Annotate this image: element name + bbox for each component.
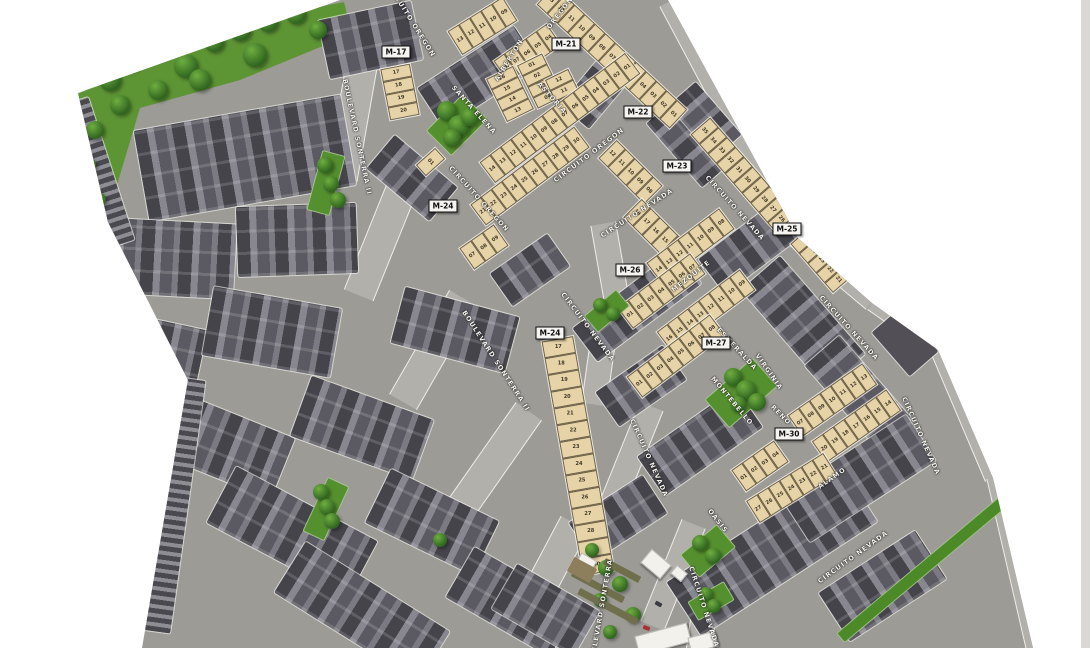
street-label: CIRCUITO NEVADA bbox=[818, 294, 881, 362]
block-badge: M-30 bbox=[774, 428, 803, 441]
street-label: OREGON bbox=[545, 0, 575, 31]
street-label: ASTORIA bbox=[535, 80, 568, 115]
street-label: CIRCUITO NEVADA bbox=[704, 174, 767, 242]
street-label: CIRCUITO NEVADA bbox=[599, 187, 674, 240]
street-label: BOULEVARD SONTERRA bbox=[588, 558, 615, 648]
label-layer: CIRCUITO OREGONCIRCUITO OREGONCIRCUITO O… bbox=[0, 0, 1090, 648]
block-badge: M-23 bbox=[662, 160, 691, 173]
street-label: ALAMO bbox=[817, 465, 848, 490]
street-label: VIRGINIA bbox=[753, 352, 784, 392]
block-badge: M-24 bbox=[428, 200, 457, 213]
street-label: BOULEVARD SONTERRA II bbox=[460, 309, 531, 413]
block-badge: M-22 bbox=[623, 106, 652, 119]
block-badge: M-24 bbox=[535, 327, 564, 340]
block-badge: M-21 bbox=[551, 38, 580, 51]
block-badge: M-26 bbox=[615, 264, 644, 277]
block-badge: M-25 bbox=[772, 223, 801, 236]
site-plan-map: 1718192013121110091312111009080706050403… bbox=[0, 0, 1090, 648]
block-badge: M-17 bbox=[381, 46, 410, 59]
street-label: CIRCUITO NEVADA bbox=[687, 565, 721, 648]
street-label: BOULEVARD SONTERRA II bbox=[341, 78, 373, 196]
street-label: CIRCUITO NEVADA bbox=[816, 529, 889, 585]
street-label: RENO bbox=[769, 403, 792, 426]
street-label: CIRCUITO OREGON bbox=[552, 126, 626, 184]
street-label: CIRCUITO NEVADA bbox=[900, 396, 942, 477]
street-label: SANTA ELENA bbox=[450, 84, 498, 136]
photo-margin-strip bbox=[1081, 0, 1090, 648]
street-label: OASIS bbox=[706, 507, 730, 534]
street-label: CIRCUITO NEVADA bbox=[628, 418, 670, 499]
street-label: CIRCUITO NEVADA bbox=[559, 291, 616, 364]
street-label: ALBERTON bbox=[493, 37, 525, 82]
street-label: MEZQUITE bbox=[670, 258, 712, 293]
street-label: MONTEBELLO bbox=[709, 375, 755, 427]
block-badge: M-27 bbox=[701, 337, 730, 350]
